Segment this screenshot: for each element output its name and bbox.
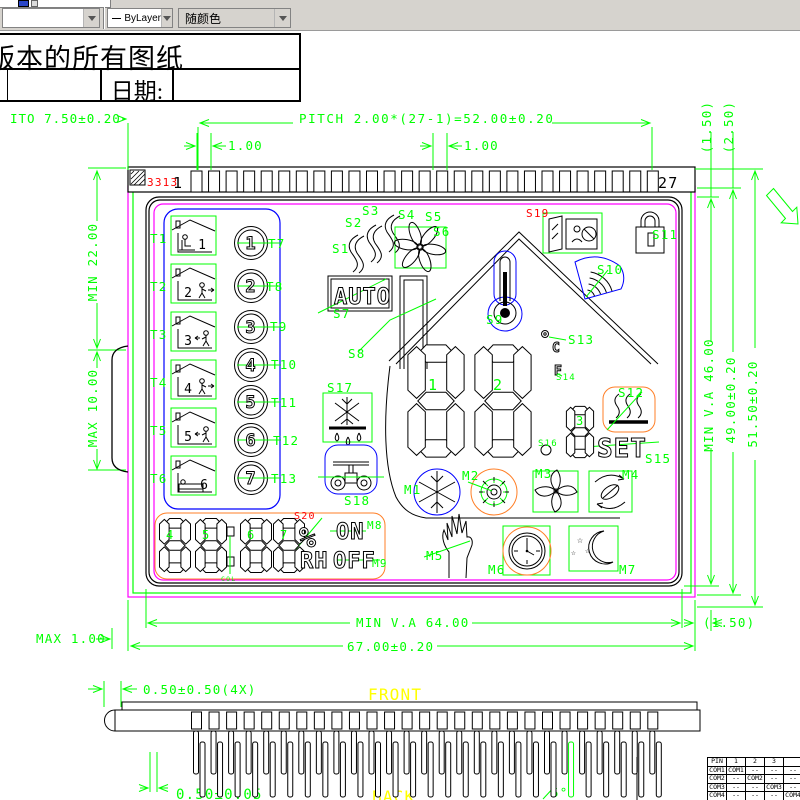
connector-stub-19 (507, 712, 517, 729)
connector-stub-9 (332, 712, 342, 729)
connector-pin-back-2 (218, 742, 223, 797)
pin-15 (437, 171, 448, 192)
pin-number-first: 1 (173, 174, 183, 192)
dial-number-text: 6 (245, 431, 256, 451)
pin-table-cell: -- (746, 792, 765, 800)
house-roof-icon-s8 (389, 232, 658, 364)
connector-pin-back-9 (340, 742, 345, 797)
connector-stub-21 (543, 712, 553, 729)
dial-number-text: 2 (245, 277, 256, 297)
cad-labels: ITO 7.50±0.20PITCH 2.00*(27-1)=52.00±0.2… (10, 101, 760, 800)
label-s15: S15 (645, 451, 671, 466)
rh-digit-4 (160, 519, 191, 573)
pin-4 (244, 171, 255, 192)
connector-pin-back-14 (428, 742, 433, 797)
pin-table-cell: -- (727, 775, 746, 784)
dial-number-text: 1 (245, 234, 256, 254)
pin-14 (419, 171, 430, 192)
connector-pin-back-10 (358, 742, 363, 797)
dim-51-50: 51.50±0.20 (745, 360, 760, 447)
connector-stub-27 (648, 712, 658, 729)
label-m5: M5 (426, 548, 443, 563)
main-digit-2 (475, 345, 531, 457)
digit-id-4: 4 (166, 528, 174, 542)
connector-stub-24 (595, 712, 605, 729)
connector-pin-back-21 (551, 742, 556, 797)
house-mode-icon-t4: 4 (171, 360, 216, 399)
pin-10 (349, 171, 360, 192)
dim-min-22: MIN 22.00 (85, 223, 100, 302)
label-t1: T1 (150, 231, 167, 246)
connector-pin-back-19 (516, 742, 521, 797)
rh-digit-5 (196, 519, 227, 573)
connector-stub-7 (297, 712, 307, 729)
main-digit-1 (408, 345, 464, 457)
connector-stub-14 (420, 712, 430, 729)
valve-icon-s18 (318, 445, 384, 494)
label-t2: T2 (150, 279, 167, 294)
connector-pin-front-18 (492, 731, 497, 774)
label-s4: S4 (398, 207, 415, 222)
connector-pin-back-13 (411, 742, 416, 797)
label-s16: S16 (538, 439, 558, 449)
pin-table-header: 3 (765, 758, 784, 767)
dial-number-text: 3 (245, 318, 256, 338)
pin-24 (595, 171, 606, 192)
pin-23 (577, 171, 588, 192)
dial-number-text: 7 (245, 469, 256, 489)
connector-pin-front-3 (229, 731, 234, 774)
label-t13: T13 (271, 471, 297, 486)
pin-table-cell: -- (765, 792, 784, 800)
connector-pin-front-10 (351, 731, 356, 774)
connector-pin-back-17 (481, 742, 486, 797)
label-t5: T5 (150, 423, 167, 438)
label-t8: T8 (266, 279, 283, 294)
pin-19 (507, 171, 518, 192)
dim-67: 67.00±0.20 (347, 639, 434, 654)
connector-pin-back-5 (270, 742, 275, 797)
pin-table-cell: COM4 (784, 792, 800, 800)
connector-pin-back-22 (569, 742, 574, 797)
connector-pin-front-21 (545, 731, 550, 774)
connector-stub-20 (525, 712, 535, 729)
dial-number-text: 5 (245, 393, 256, 413)
front-label: FRONT (368, 685, 422, 704)
house-number: 2 (184, 286, 192, 301)
connector-pin-back-25 (621, 742, 626, 797)
pin-number-last: 27 (658, 174, 678, 192)
label-s18: S18 (344, 493, 370, 508)
steam-wave-icon-s2 (367, 225, 382, 263)
pin-12 (384, 171, 395, 192)
connector-pin-front-8 (316, 731, 321, 774)
connector-pins (192, 712, 662, 797)
label-s19: S19 (526, 207, 549, 220)
label-m4: M4 (622, 467, 639, 482)
connector-stub-25 (613, 712, 623, 729)
connector-pin-front-27 (650, 731, 655, 774)
connector-pin-front-16 (457, 731, 462, 774)
house-mode-icon-t6: 6 (171, 456, 216, 495)
label-t4: T4 (150, 375, 167, 390)
pin-26 (630, 171, 641, 192)
clock-icon-m6 (503, 526, 551, 575)
dim-0-50-4x: 0.50±0.50(4X) (143, 682, 256, 697)
set-text: SET (597, 434, 647, 464)
dim-top-1-50: (1.50) (699, 101, 714, 153)
pin-22 (560, 171, 571, 192)
label-m9: M9 (372, 557, 388, 570)
pin-table-cell: COM4 (708, 792, 727, 800)
dim-max-1: MAX 1.00 (36, 631, 106, 646)
pin-25 (612, 171, 623, 192)
pin-6 (279, 171, 290, 192)
star-icon: ☆ (585, 546, 590, 555)
house-number: 1 (198, 238, 206, 253)
pin-13 (402, 171, 413, 192)
connector-stub-3 (227, 712, 237, 729)
pin-18 (489, 171, 500, 192)
connector-stub-10 (349, 712, 359, 729)
label-t10: T10 (271, 357, 297, 372)
label-t3: T3 (150, 327, 167, 342)
dim-pin-gap-left: 1.00 (228, 138, 263, 153)
dim-49: 49.00±0.20 (723, 356, 738, 443)
house-number: 3 (184, 334, 192, 349)
house-mode-icon-t5: 5 (171, 408, 216, 447)
label-s7: S7 (333, 306, 350, 321)
connector-pin-front-9 (334, 731, 339, 774)
digit-id-2: 2 (493, 376, 503, 394)
connector-stub-18 (490, 712, 500, 729)
dim-pin-gap-right: 1.00 (464, 138, 499, 153)
dim-min-va-64: MIN V.A 64.00 (356, 615, 469, 630)
pin-11 (367, 171, 378, 192)
connector-stub-4 (244, 712, 254, 729)
label-m3: M3 (535, 466, 552, 481)
connector-pin-front-14 (422, 731, 427, 774)
cad-drawing-canvas[interactable]: ☆ ☆ ☆ 123456 1234567 AUTOSETONOFFRH%CF I… (0, 0, 800, 800)
label-t12: T12 (273, 433, 299, 448)
connector-pin-back-15 (446, 742, 451, 797)
label-s10: S10 (597, 262, 623, 277)
pin-3 (226, 171, 237, 192)
connector-pin-back-16 (463, 742, 468, 797)
connector-stub-15 (437, 712, 447, 729)
label-m6: M6 (488, 562, 505, 577)
off-text: OFF (333, 549, 376, 574)
label-s1: S1 (332, 241, 349, 256)
pin-1 (191, 171, 202, 192)
connector-stub-23 (578, 712, 588, 729)
left-bracket-electrode (112, 346, 128, 472)
pin-table-cell: -- (727, 792, 746, 800)
label-s11: S11 (652, 227, 678, 242)
house-mode-icon-t3: 3 (171, 312, 216, 351)
steam-wave-icon-s1 (349, 235, 364, 273)
label-col: COL (221, 575, 236, 583)
hand-icon-m5 (424, 514, 472, 578)
pin-table-cell: COM2 (708, 775, 727, 784)
dim-ito: ITO 7.50±0.20 (10, 111, 121, 126)
connector-pin-front-2 (211, 731, 216, 774)
connector-pin-front-22 (562, 731, 567, 774)
pin-table-header (784, 758, 800, 767)
label-s14: S14 (556, 373, 576, 383)
house-mode-icon-t2: 2 (171, 264, 216, 303)
connector-pin-back-7 (305, 742, 310, 797)
connector-pin-front-24 (597, 731, 602, 774)
pin-2 (209, 171, 220, 192)
label-s20: S20 (294, 511, 316, 522)
label-t7: T7 (268, 236, 285, 251)
connector-stub-1 (192, 712, 202, 729)
connector-pin-front-11 (369, 731, 374, 774)
moon-icon-m7: ☆ ☆ ☆ (569, 526, 618, 571)
pin-16 (454, 171, 465, 192)
connector-pin-front-4 (246, 731, 251, 774)
connector-pin-back-24 (604, 742, 609, 797)
connector-pin-front-17 (474, 731, 479, 774)
open-window-icon-s19 (543, 213, 602, 253)
dim-min-va-46: MIN V.A 46.00 (701, 338, 716, 451)
pin-table-header: PIN (708, 758, 727, 767)
connector-stub-26 (630, 712, 640, 729)
pin-8 (314, 171, 325, 192)
label-s12: S12 (618, 385, 644, 400)
com-pin-table: PIN123COM1COM1------COM2--COM2----COM3--… (707, 757, 800, 800)
connector-pin-front-23 (580, 731, 585, 774)
deg-c-text: C (552, 341, 561, 356)
connector-pin-back-18 (498, 742, 503, 797)
connector-stub-5 (262, 712, 272, 729)
pin-27 (647, 171, 658, 192)
house-mode-icon-t1: 1 (171, 216, 216, 255)
ito-pins (191, 171, 658, 192)
digit-id-3: 3 (576, 414, 584, 428)
connector-pin-front-19 (509, 731, 514, 774)
connector-stub-12 (385, 712, 395, 729)
label-t6: T6 (150, 471, 167, 486)
digit-id-7: 7 (280, 528, 288, 542)
connector-pin-back-1 (200, 742, 205, 797)
label-s6: S6 (433, 224, 450, 239)
connector-stub-8 (314, 712, 324, 729)
connector-pin-front-13 (404, 731, 409, 774)
dim-top-2-50: (2.50) (721, 101, 736, 153)
pin-7 (296, 171, 307, 192)
digit-id-1: 1 (428, 376, 438, 394)
rh-digit-6 (241, 519, 272, 573)
pin-20 (524, 171, 535, 192)
connector-pin-front-6 (281, 731, 286, 774)
pin-table-cell: -- (784, 775, 800, 784)
digit-id-6: 6 (247, 528, 255, 542)
pin-table-header: 2 (746, 758, 765, 767)
connector-pin-back-20 (533, 742, 538, 797)
connector-stub-13 (402, 712, 412, 729)
connector-pin-front-15 (439, 731, 444, 774)
pin-table-cell: COM2 (746, 775, 765, 784)
label-s17: S17 (327, 380, 353, 395)
house-number: 6 (200, 478, 208, 493)
dial-number-text: 4 (245, 356, 256, 376)
connector-pin-front-12 (387, 731, 392, 774)
label-t9: T9 (270, 319, 287, 334)
pin-17 (472, 171, 483, 192)
star-icon: ☆ (571, 548, 576, 557)
connector-stub-17 (472, 712, 482, 729)
digit-id-5: 5 (202, 528, 210, 542)
connector-pin-back-23 (586, 742, 591, 797)
connector-pin-back-11 (376, 742, 381, 797)
connector-pin-front-1 (194, 731, 199, 774)
colon-dot-icon (227, 527, 234, 536)
north-arrow-icon (767, 189, 799, 225)
pin-9 (331, 171, 342, 192)
connector-pin-back-26 (639, 742, 644, 797)
house-mode-icons: 123456 (171, 216, 216, 495)
connector-pin-back-3 (235, 742, 240, 797)
star-icon: ☆ (577, 535, 583, 546)
dim-pitch: PITCH 2.00*(27-1)=52.00±0.20 (299, 111, 555, 126)
label-s9: S9 (486, 312, 503, 327)
connector-stub-6 (279, 712, 289, 729)
dim-bottom-1-50: (1.50) (703, 615, 755, 630)
on-text: ON (336, 520, 365, 545)
label-s3: S3 (362, 203, 379, 218)
connector-pin-front-25 (615, 731, 620, 774)
label-m1: M1 (404, 482, 421, 497)
connector-pin-back-12 (393, 742, 398, 797)
percent-text: % (299, 521, 317, 554)
defrost-icon-s17 (323, 393, 372, 445)
house-number: 5 (184, 430, 192, 445)
label-t11: T11 (271, 395, 297, 410)
connector-stub-2 (209, 712, 219, 729)
label-s13: S13 (568, 332, 594, 347)
connector-pin-front-20 (527, 731, 532, 774)
connector-pin-front-7 (299, 731, 304, 774)
label-m2: M2 (462, 468, 479, 483)
connector-pin-back-6 (288, 742, 293, 797)
connector-stub-16 (455, 712, 465, 729)
app-window: ByLayer 随颜色 版本的所有图纸 日期: (0, 0, 800, 800)
connector-stub-22 (560, 712, 570, 729)
pin-table-header: 1 (727, 758, 746, 767)
label-s8: S8 (348, 346, 365, 361)
connector-pin-back-27 (656, 742, 661, 797)
pin-5 (261, 171, 272, 192)
label-m8: M8 (367, 519, 383, 532)
connector-pin-back-4 (253, 742, 258, 797)
pin-table-cell: -- (765, 775, 784, 784)
connector-pin-back-8 (323, 742, 328, 797)
label-m7: M7 (619, 562, 636, 577)
label-s2: S2 (345, 215, 362, 230)
pin-21 (542, 171, 553, 192)
label-s5: S5 (425, 209, 442, 224)
dim-max-10: MAX 10.00 (85, 369, 100, 448)
house-number: 4 (184, 382, 192, 397)
connector-pin-front-5 (264, 731, 269, 774)
connector-stub-11 (367, 712, 377, 729)
